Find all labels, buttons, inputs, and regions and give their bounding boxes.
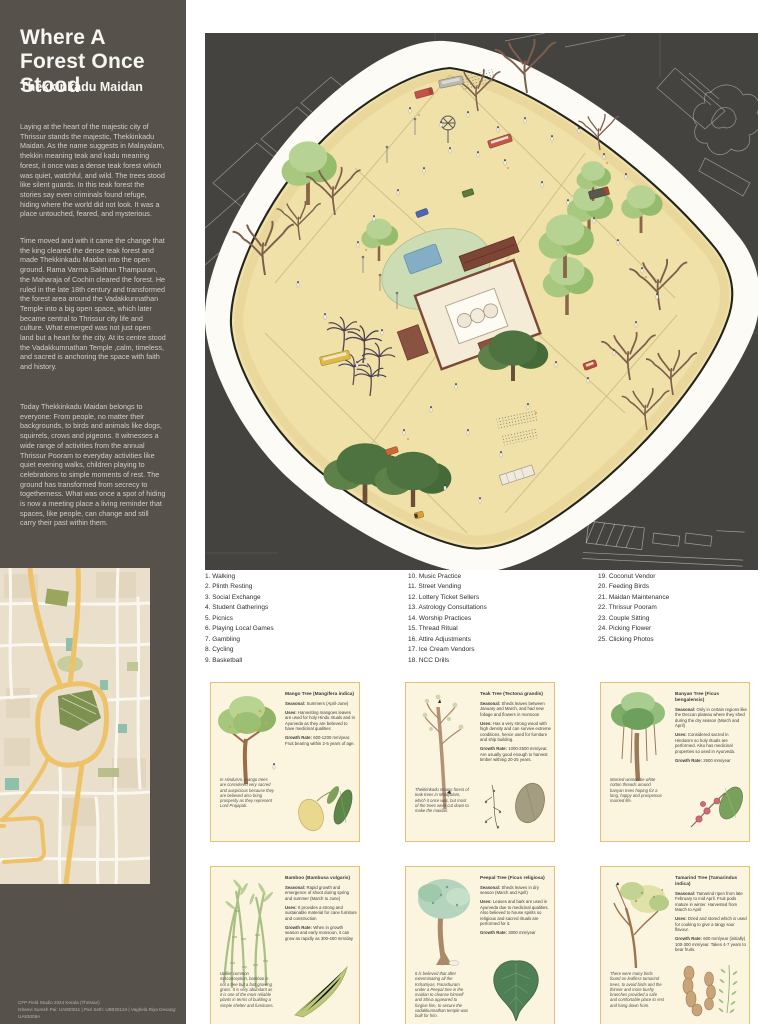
mango-tree-drawing <box>216 689 282 789</box>
tree-card-bamboo: Bamboo (Bambusa vulgaris) Seasonal: Rapi… <box>210 866 360 1024</box>
intro-paragraph-1: Laying at the heart of the majestic city… <box>20 122 166 219</box>
card-title: Banyan Tree (Ficus bengalensis) <box>675 692 747 704</box>
tamarind-tree-drawing <box>606 873 672 973</box>
banyan-fruit-drawing <box>673 775 745 837</box>
intro-paragraph-2: Time moved and with it came the change t… <box>20 236 166 372</box>
legend-item: 24. Picking Flower <box>598 624 758 634</box>
legend-item: 7. Gambling <box>205 635 395 645</box>
tree-card-banyan: Banyan Tree (Ficus bengalensis) Seasonal… <box>600 682 750 842</box>
legend-item: 13. Astrology Consultations <box>408 603 593 613</box>
card-title: Peepal Tree (Ficus religiosa) <box>480 876 552 882</box>
legend-column-1: 1. Walking2. Plinth Resting3. Social Exc… <box>205 572 395 666</box>
tree-card-mango: Mango Tree (Mangifera indica) Seasonal: … <box>210 682 360 842</box>
legend-item: 3. Social Exchange <box>205 593 395 603</box>
credits: CFP Field Studio 2024 Kerala (Thrissur) … <box>18 999 186 1020</box>
legend-item: 17. Ice Cream Vendors <box>408 645 593 655</box>
legend-item: 12. Lottery Ticket Sellers <box>408 593 593 603</box>
legend-item: 1. Walking <box>205 572 395 582</box>
legend-item: 20. Feeding Birds <box>598 582 758 592</box>
card-title: Mango Tree (Mangifera indica) <box>285 692 357 698</box>
card-note: There were many birds found on leafless … <box>610 971 664 1008</box>
tree-card-peepal: Peepal Tree (Ficus religiosa) Seasonal: … <box>405 866 555 1024</box>
card-title: Tamarind Tree (Tamarindus indica) <box>675 876 747 888</box>
card-note: Thekkinkadu means forest of teak trees i… <box>415 787 469 813</box>
figure <box>273 763 275 769</box>
tree-card-tamarind: Tamarind Tree (Tamarindus indica) Season… <box>600 866 750 1024</box>
legend-item: 6. Playing Local Games <box>205 624 395 634</box>
legend-item: 8. Cycling <box>205 645 395 655</box>
legend-item: 4. Student Gatherings <box>205 603 395 613</box>
legend-item: 11. Street Vending <box>408 582 593 592</box>
legend-item: 5. Picnics <box>205 614 395 624</box>
legend-item: 2. Plinth Resting <box>205 582 395 592</box>
poster-page: Where A Forest Once Stood Thekkinkadu Ma… <box>0 0 768 1024</box>
card-note: Married women tie white cotton threads a… <box>610 777 664 803</box>
intro-paragraph-3: Today Thekkinkadu Maidan belongs to ever… <box>20 402 166 528</box>
legend-item: 21. Maidan Maintenance <box>598 593 758 603</box>
legend-item: 22. Thrissur Pooram <box>598 603 758 613</box>
maidan-illustration <box>205 33 758 570</box>
peepal-leaf-drawing <box>478 959 550 1021</box>
legend-column-3: 19. Coconut Vendor20. Feeding Birds21. M… <box>598 572 758 645</box>
legend-item: 16. Attire Adjustments <box>408 635 593 645</box>
legend-item: 10. Music Practice <box>408 572 593 582</box>
legend-item: 18. NCC Drills <box>408 656 593 666</box>
card-note: In Hinduism, mango trees are considered … <box>220 777 274 809</box>
credit-line-1: CFP Field Studio 2024 Kerala (Thrissur) <box>18 999 186 1006</box>
thrissur-city-map <box>0 568 150 884</box>
legend-item: 9. Basketball <box>205 656 395 666</box>
legend-item: 15. Thread Ritual <box>408 624 593 634</box>
legend-item: 14. Worship Practices <box>408 614 593 624</box>
card-title: Teak Tree (Tectona grandis) <box>480 692 552 698</box>
tamarind-pods-drawing <box>673 959 745 1021</box>
credit-line-2: Ishanvi Suresh Pai: UA830011 | Pari Seth… <box>18 1006 186 1020</box>
teak-leaf-drawing <box>478 775 550 837</box>
tree-card-teak: Teak Tree (Tectona grandis) Seasonal: Sh… <box>405 682 555 842</box>
card-note: It is believed that after exterminating … <box>415 971 469 1019</box>
legend-item: 19. Coconut Vendor <box>598 572 758 582</box>
poster-subtitle: Thekkinkadu Maidan <box>20 80 170 94</box>
card-title: Bamboo (Bambusa vulgaris) <box>285 876 357 882</box>
legend-column-2: 10. Music Practice11. Street Vending12. … <box>408 572 593 666</box>
legend-item: 25. Clicking Photos <box>598 635 758 645</box>
card-note: Unlike common misconception, bamboo is n… <box>220 971 274 1008</box>
bamboo-leaf-drawing <box>283 959 355 1021</box>
sidebar: Where A Forest Once Stood Thekkinkadu Ma… <box>0 0 186 1024</box>
mango-fruit-drawing <box>283 775 355 837</box>
legend-item: 23. Couple Sitting <box>598 614 758 624</box>
banyan-tree-drawing <box>606 689 672 789</box>
peepal-tree-drawing <box>411 873 477 973</box>
